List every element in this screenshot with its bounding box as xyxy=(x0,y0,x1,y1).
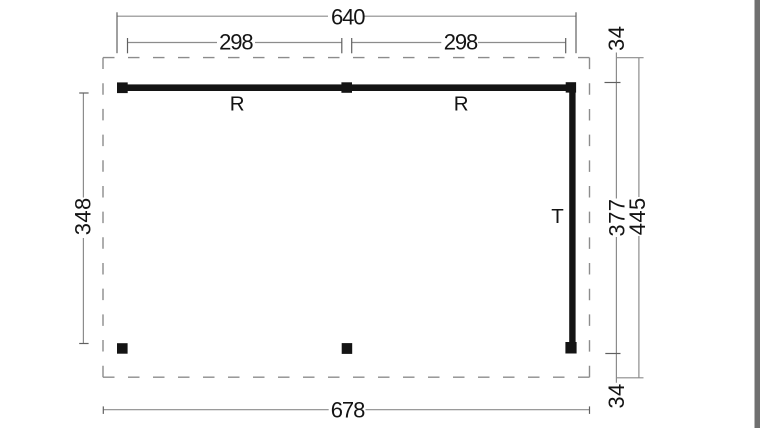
svg-text:R: R xyxy=(454,93,469,116)
svg-text:445: 445 xyxy=(625,197,650,235)
svg-text:R: R xyxy=(230,93,245,116)
svg-text:T: T xyxy=(551,205,564,228)
svg-text:298: 298 xyxy=(444,30,478,55)
svg-text:34: 34 xyxy=(604,383,629,408)
svg-text:34: 34 xyxy=(604,26,629,51)
svg-text:640: 640 xyxy=(331,5,365,30)
svg-text:298: 298 xyxy=(219,30,253,55)
svg-text:678: 678 xyxy=(331,398,365,423)
svg-text:348: 348 xyxy=(71,197,96,235)
